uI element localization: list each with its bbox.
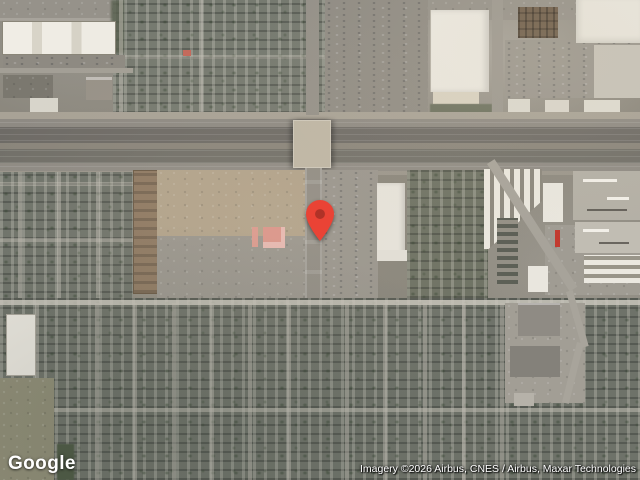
street-vertical [423,303,427,480]
storage-yard-lot [545,225,640,295]
white-building-roof [6,314,36,376]
freeway-lanes-westbound [0,127,640,143]
strip-mall-roof [508,99,530,112]
location-pin-body[interactable] [306,200,334,241]
campus-building-roof [510,346,560,377]
street-horizontal [113,55,325,59]
access-road-diagonal [487,159,577,291]
street-vertical [500,303,504,480]
campus-building-roof [518,303,560,336]
building-roof [30,98,58,112]
location-pin[interactable] [306,200,334,241]
frontage-road [0,163,640,171]
warehouse-roof [2,21,116,55]
school-campus-lot [505,303,585,403]
strip-mall-roof [545,100,569,112]
street-vertical [18,172,22,302]
imagery-attribution: Imagery ©2026 Airbus, CNES / Airbus, Max… [360,463,636,475]
street-horizontal [0,68,133,73]
campus-building-roof [514,393,534,406]
building-roof [594,45,640,98]
google-logo[interactable]: Google [8,453,76,475]
storage-unit-rows [484,169,542,249]
warehouse-roof [576,0,640,43]
street-vertical [57,172,61,302]
street-vertical [199,0,203,113]
street-horizontal [0,182,133,186]
street-vertical [95,303,99,480]
retail-building-roof [377,183,405,255]
concrete-lot [157,236,305,302]
scrub-trailer-block [407,170,488,298]
warehouse-roof [430,10,489,92]
industrial-strip-top [0,0,640,20]
main-road-vertical [306,0,319,115]
street-vertical [462,303,466,480]
freeway-median [0,143,640,149]
street-vertical [383,303,387,480]
dirt-lot [157,170,305,236]
satellite-map-canvas[interactable]: Google Imagery ©2026 Airbus, CNES / Airb… [0,0,640,480]
commercial-building-roof [573,171,640,220]
freeway-shoulder [0,171,640,175]
street-vertical [248,303,252,480]
red-truck [555,230,560,247]
building-roof [433,92,479,104]
residential-block [0,172,133,302]
parking-lot [325,0,428,113]
gravel-lot [3,75,53,98]
location-pin-dot [315,209,325,219]
residential-block [113,0,325,113]
white-building-roof [528,266,548,292]
curved-road-segment [562,342,584,404]
street-vertical [492,0,503,115]
street-horizontal [0,238,133,242]
tree-row [430,104,492,116]
commercial-building-roof [575,222,640,253]
street-vertical [96,172,100,302]
street-vertical [210,303,214,480]
long-warehouse-roof [133,170,159,294]
street-vertical [172,303,176,480]
white-building-roof [543,183,563,222]
parking-lot [505,40,640,98]
parking-lot [3,55,125,68]
brown-building-roof [518,7,558,38]
street-vertical [133,303,137,480]
street-horizontal [0,18,330,21]
freeway-shoulder [0,112,640,119]
overpass-bridge [293,120,331,168]
street-vertical [287,303,291,480]
street-horizontal [0,408,640,412]
curved-road-segment [566,290,589,348]
street-vertical [119,0,123,113]
street-horizontal [0,300,640,305]
street-vertical [345,303,349,480]
salmon-roof-strip [252,227,258,247]
freeway-lanes-eastbound [0,149,640,163]
frontage-road [0,119,640,127]
residential-block [0,298,640,480]
storage-unit-rows [497,218,518,284]
tree-row [111,0,124,53]
building-roof [86,77,112,100]
storage-unit-rows [584,255,640,283]
red-roof-house [183,50,191,56]
salmon-roof-building [263,227,285,248]
retail-building-roof [377,250,414,261]
strip-mall-roof [584,100,620,114]
